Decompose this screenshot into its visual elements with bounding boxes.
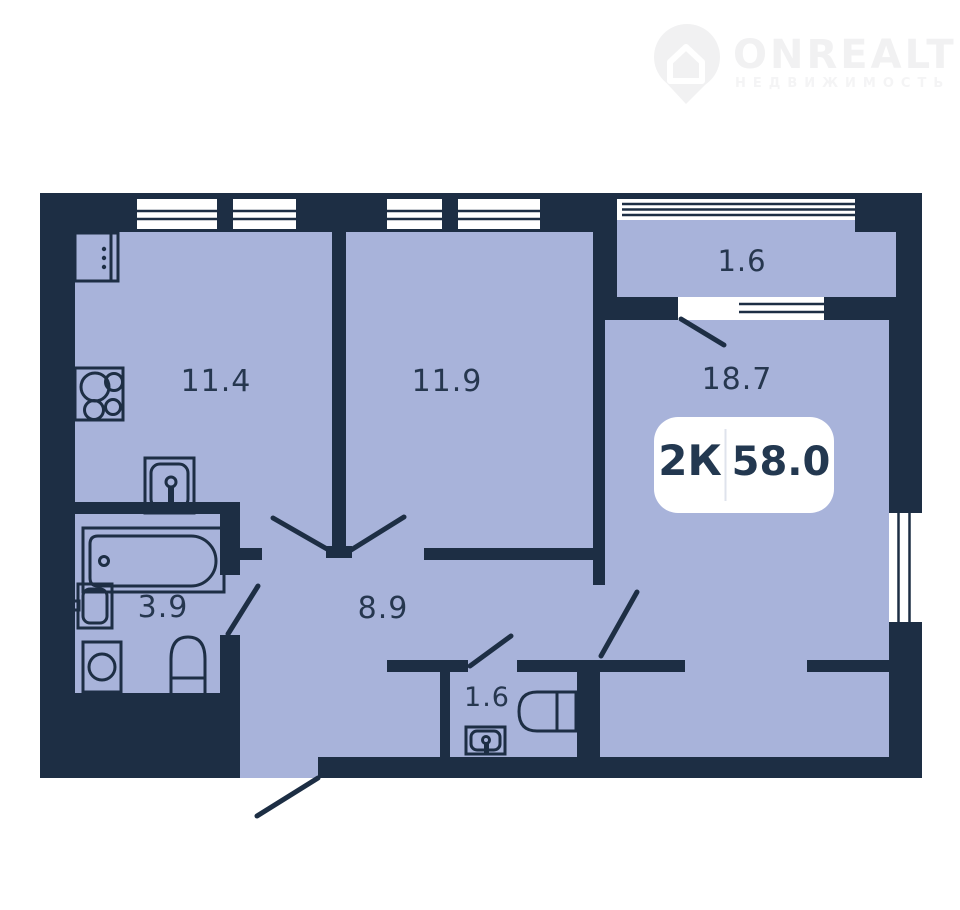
window-balcony-living bbox=[739, 297, 824, 320]
floorplan-svg: ONREALT НЕДВИЖИМОСТЬ bbox=[0, 0, 960, 910]
wall-bathroom-right-lower bbox=[220, 635, 240, 693]
wall-hallway-living bbox=[593, 320, 605, 585]
wall-top-right-corner bbox=[855, 193, 922, 232]
window-bedroom-2 bbox=[458, 199, 540, 229]
logo-tagline-text: НЕДВИЖИМОСТЬ bbox=[735, 76, 950, 91]
wall-wc-top-left bbox=[387, 660, 468, 672]
window-kitchen-1 bbox=[137, 199, 217, 229]
wall-wc-right bbox=[577, 660, 600, 757]
wall-bottom bbox=[318, 757, 922, 778]
bathroom-area-label: 3.9 bbox=[138, 590, 189, 625]
apartment-badge: 2К 58.0 bbox=[654, 417, 834, 513]
window-bedroom-1 bbox=[387, 199, 442, 229]
window-living-right bbox=[889, 513, 922, 622]
hallway-area-label: 8.9 bbox=[358, 591, 409, 626]
floorplan-page: ONREALT НЕДВИЖИМОСТЬ bbox=[0, 0, 960, 910]
wall-bottom-left-block bbox=[40, 693, 240, 778]
wall-living-stub-right bbox=[807, 660, 889, 672]
wall-living-stub-left bbox=[600, 660, 685, 672]
wall-balcony-bottom-right bbox=[824, 297, 922, 320]
kitchen-area-label: 11.4 bbox=[181, 364, 252, 399]
onrealt-logo: ONREALT НЕДВИЖИМОСТЬ bbox=[654, 24, 957, 104]
wall-bedroom-hallway bbox=[424, 548, 605, 560]
wall-kitchen-bedroom-foot bbox=[326, 546, 352, 558]
wall-balcony-right bbox=[896, 232, 922, 297]
wall-bedroom-balcony bbox=[593, 232, 617, 320]
wall-kitchen-bedroom bbox=[332, 232, 346, 548]
wall-wc-left bbox=[440, 672, 450, 757]
wall-wc-top-right bbox=[517, 660, 577, 672]
logo-brand-text: ONREALT bbox=[733, 32, 957, 78]
badge-rooms-label: 2К bbox=[658, 436, 722, 485]
window-balcony-glazing bbox=[622, 199, 855, 220]
balcony-area-label: 1.6 bbox=[717, 244, 766, 278]
living-room-area-label: 18.7 bbox=[702, 362, 773, 397]
wall-left bbox=[40, 193, 75, 778]
badge-area-value: 58.0 bbox=[732, 439, 831, 485]
window-kitchen-2 bbox=[233, 199, 296, 229]
wall-balcony-glazing-top bbox=[617, 193, 855, 199]
bedroom-area-label: 11.9 bbox=[412, 364, 483, 399]
wc-area-label: 1.6 bbox=[464, 682, 510, 713]
door-entrance bbox=[257, 778, 318, 816]
